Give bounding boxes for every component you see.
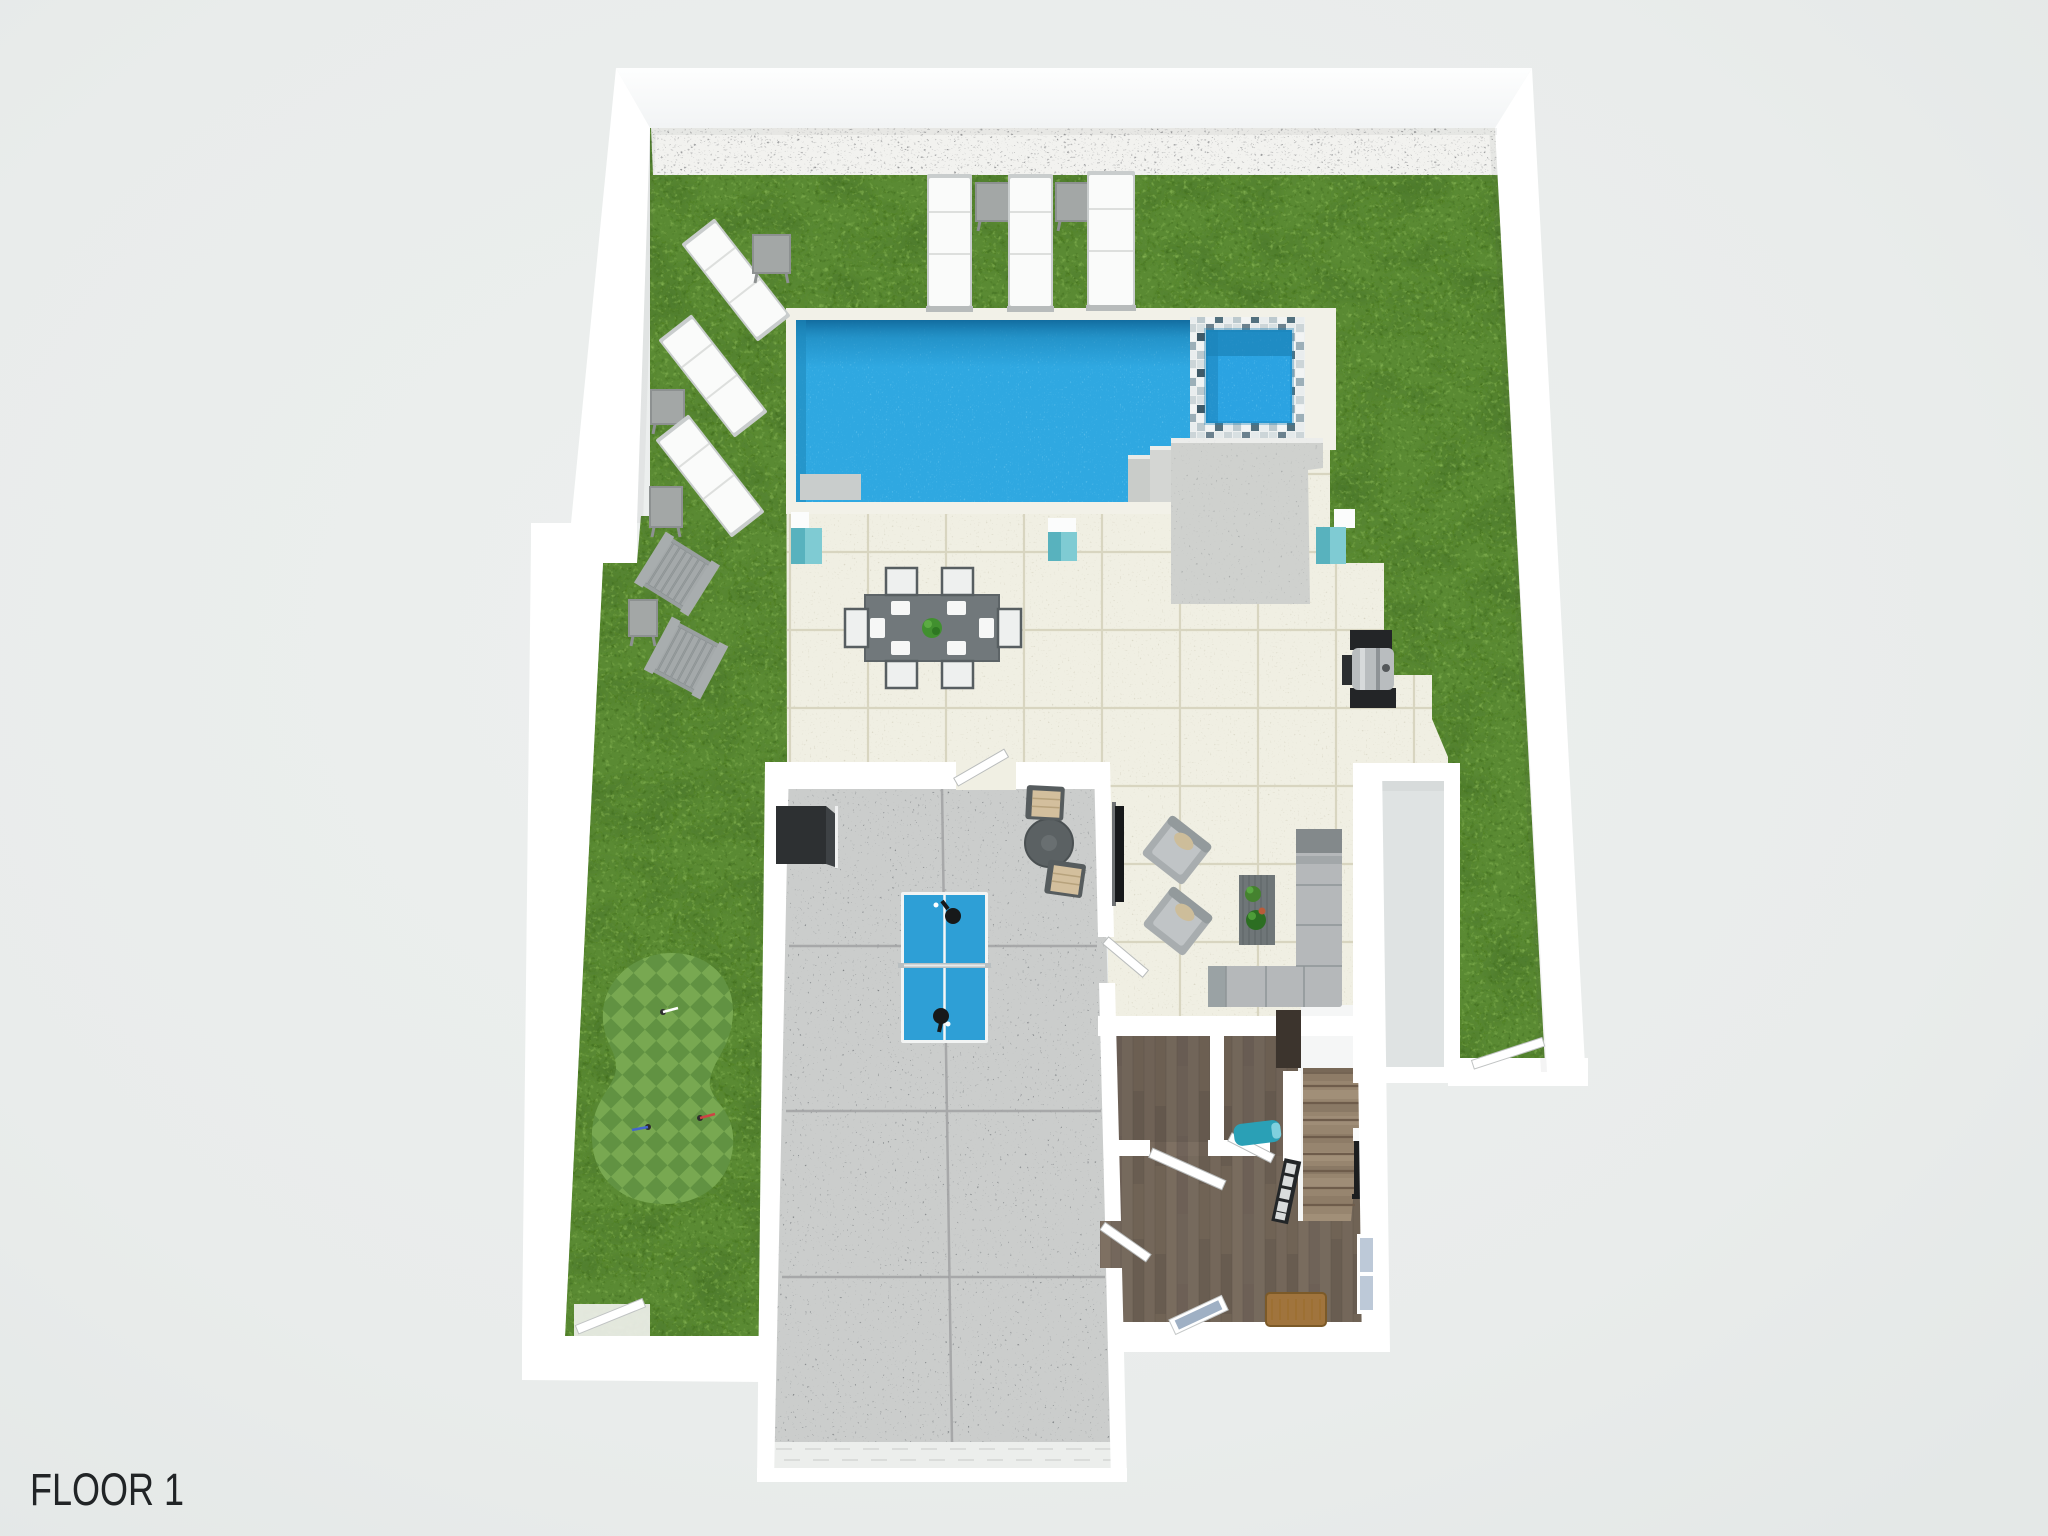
svg-text:FLOOR 1: FLOOR 1 <box>30 1464 184 1515</box>
